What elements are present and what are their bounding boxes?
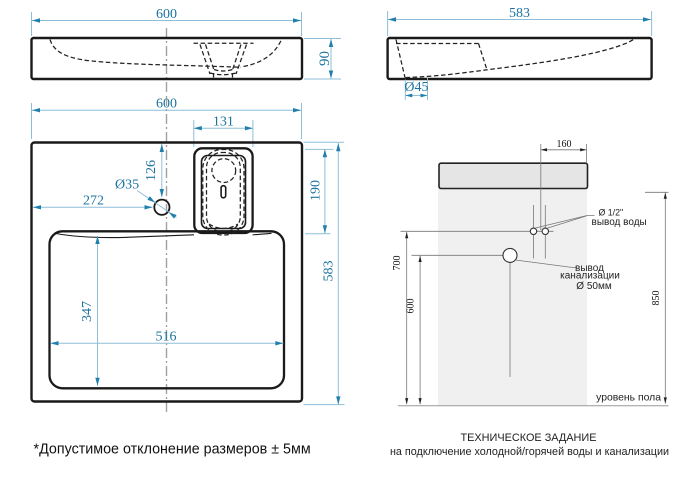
svg-text:канализации: канализации xyxy=(560,271,620,282)
svg-text:Ø35: Ø35 xyxy=(115,178,139,193)
svg-text:Ø 50мм: Ø 50мм xyxy=(576,281,612,292)
svg-text:516: 516 xyxy=(156,330,177,345)
svg-text:600: 600 xyxy=(406,299,417,314)
svg-text:583: 583 xyxy=(509,6,530,21)
svg-text:700: 700 xyxy=(392,256,403,271)
svg-text:131: 131 xyxy=(213,115,234,130)
svg-text:на подключение холодной/горяче: на подключение холодной/горячей воды и к… xyxy=(390,446,669,458)
svg-text:*Допустимое отклонение размеро: *Допустимое отклонение размеров ± 5мм xyxy=(34,441,311,457)
svg-text:347: 347 xyxy=(80,301,95,322)
svg-text:90: 90 xyxy=(317,51,333,66)
svg-text:ТЕХНИЧЕСКОЕ ЗАДАНИЕ: ТЕХНИЧЕСКОЕ ЗАДАНИЕ xyxy=(460,432,596,444)
svg-text:272: 272 xyxy=(83,194,104,209)
svg-text:вывод воды: вывод воды xyxy=(592,217,647,228)
svg-text:190: 190 xyxy=(308,180,323,201)
svg-text:850: 850 xyxy=(651,291,662,306)
svg-text:600: 600 xyxy=(156,7,177,22)
svg-text:583: 583 xyxy=(321,261,336,282)
svg-text:Ø 1/2": Ø 1/2" xyxy=(599,208,624,218)
svg-text:160: 160 xyxy=(557,139,572,150)
svg-text:уровень пола: уровень пола xyxy=(596,392,661,403)
svg-text:126: 126 xyxy=(144,160,159,181)
svg-text:Ø45: Ø45 xyxy=(404,80,428,95)
